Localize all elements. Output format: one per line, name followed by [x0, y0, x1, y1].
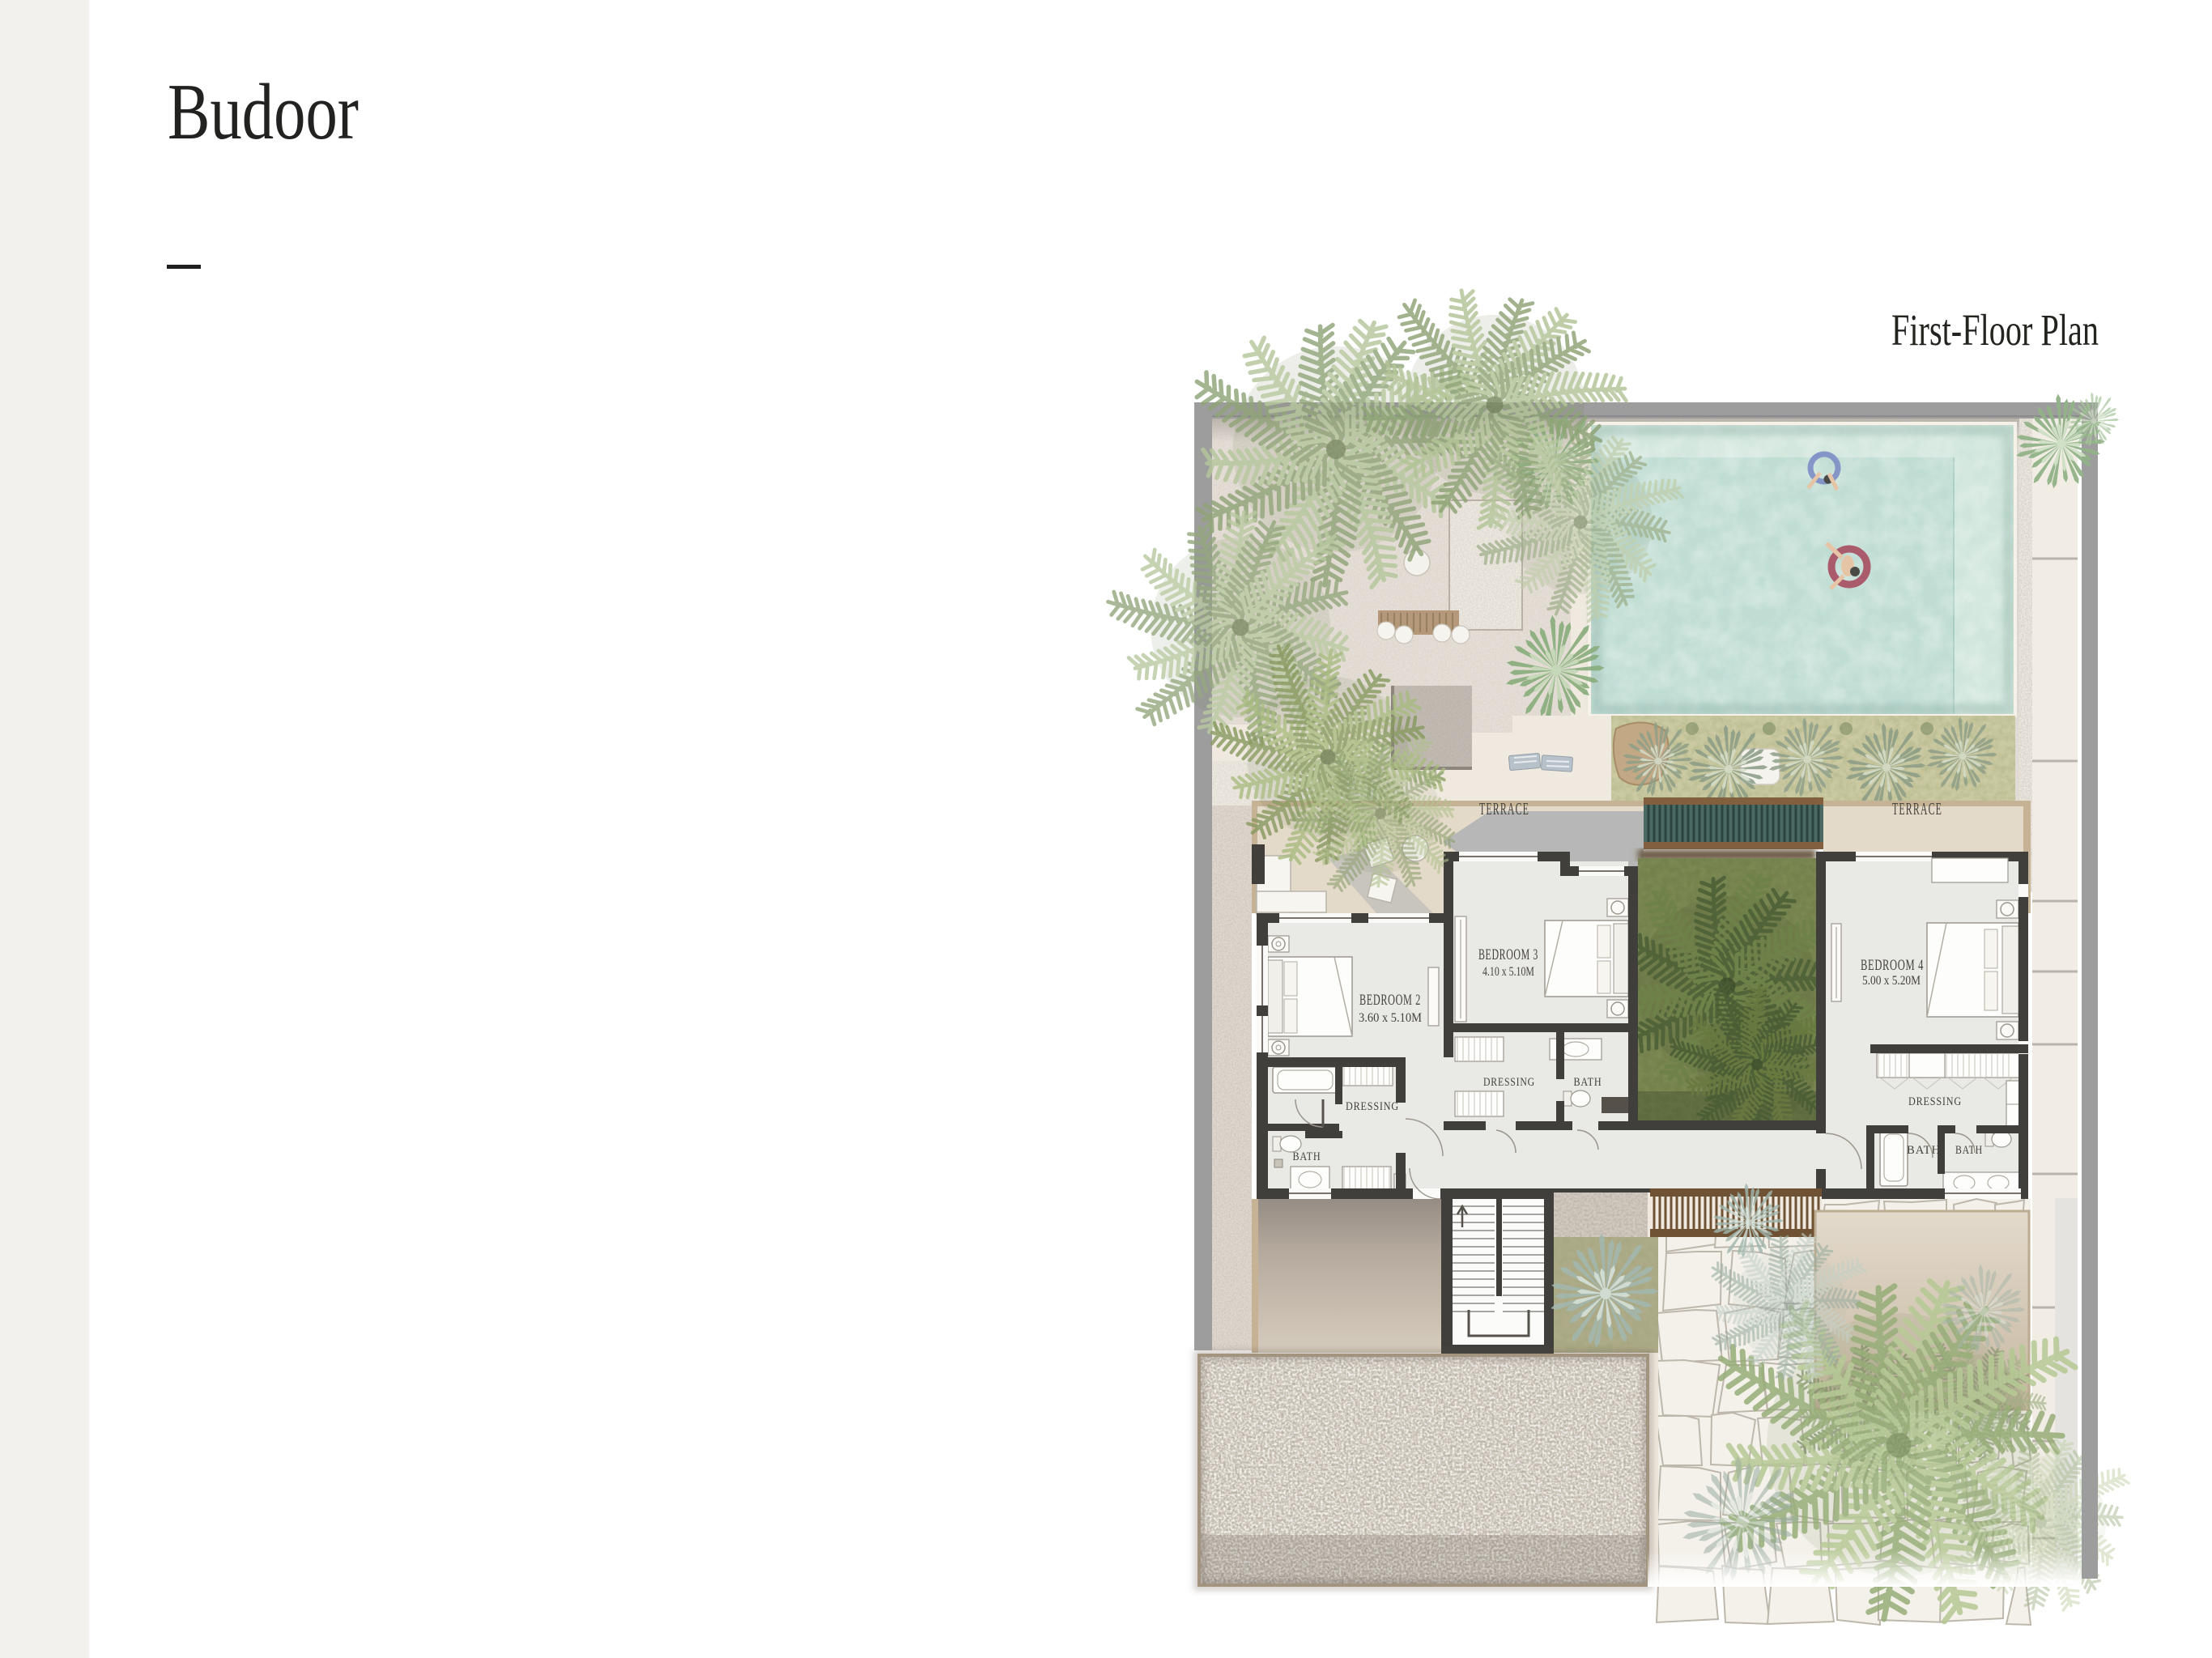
- svg-text:TERRACE: TERRACE: [1892, 799, 1942, 818]
- svg-text:BEDROOM 2: BEDROOM 2: [1359, 992, 1421, 1009]
- svg-text:Budoor: Budoor: [168, 68, 359, 156]
- svg-text:DRESSING: DRESSING: [1483, 1076, 1535, 1089]
- svg-text:BATH: BATH: [1574, 1076, 1602, 1089]
- svg-text:DRESSING: DRESSING: [1346, 1100, 1399, 1113]
- svg-text:First-Floor Plan: First-Floor Plan: [1891, 305, 2099, 355]
- svg-text:3.60 x 5.10M: 3.60 x 5.10M: [1359, 1011, 1422, 1025]
- svg-text:5.00 x 5.20M: 5.00 x 5.20M: [1862, 974, 1921, 988]
- svg-text:TERRACE: TERRACE: [1479, 799, 1529, 818]
- svg-text:BATH: BATH: [1907, 1144, 1941, 1157]
- svg-text:DRESSING: DRESSING: [1908, 1095, 1962, 1108]
- svg-text:BATH: BATH: [1293, 1150, 1321, 1163]
- svg-text:4.10 x 5.10M: 4.10 x 5.10M: [1482, 965, 1534, 979]
- svg-text:BEDROOM 4: BEDROOM 4: [1861, 957, 1924, 974]
- svg-text:BEDROOM 3: BEDROOM 3: [1478, 946, 1538, 963]
- svg-text:BATH: BATH: [1955, 1144, 1983, 1157]
